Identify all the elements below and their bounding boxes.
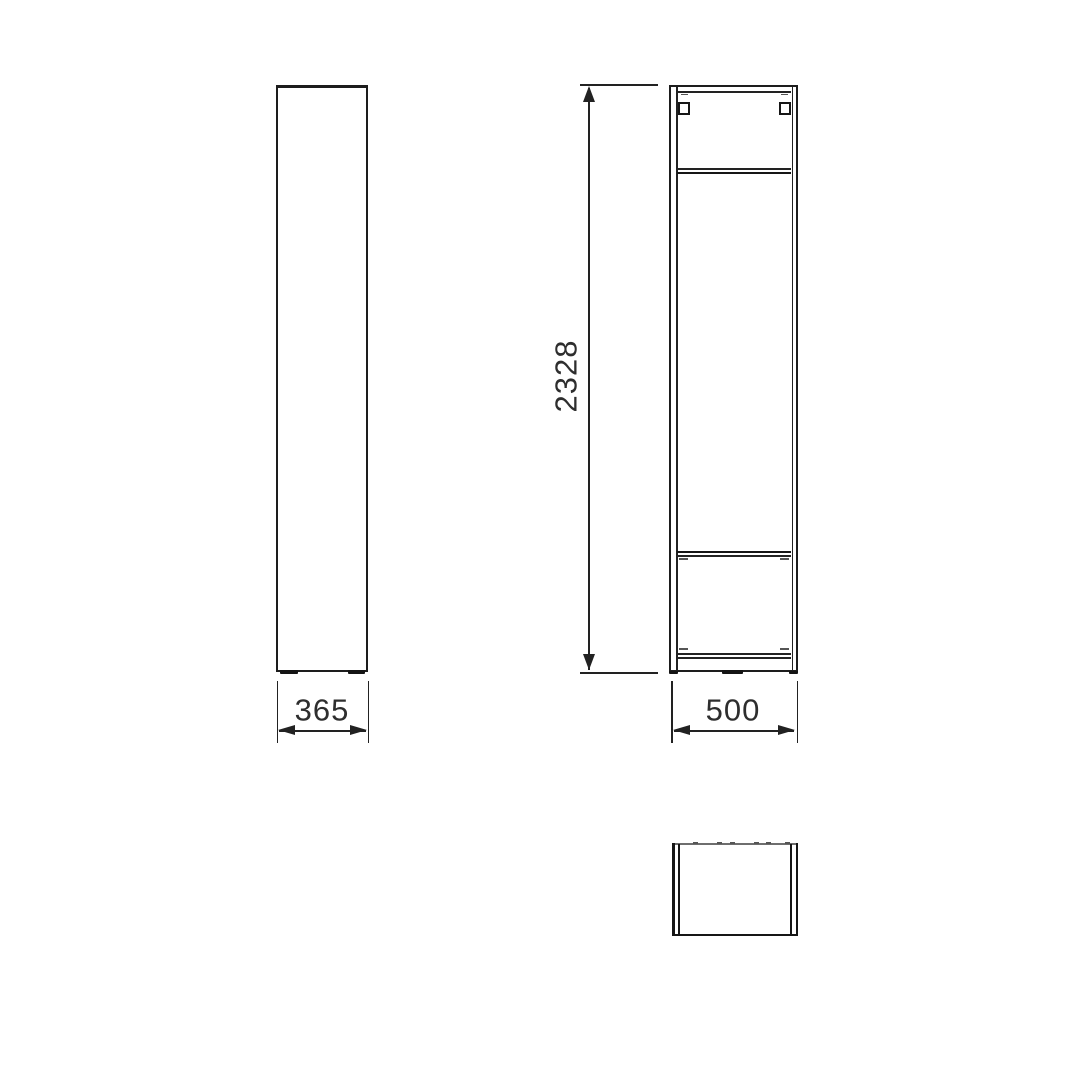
hanger-bracket-left-icon [678,102,690,115]
upper-shelf-line-1 [677,168,791,170]
arrow-right-icon [778,725,795,735]
depth-dimension-label: 365 [295,695,350,726]
front-foot-left-icon [669,671,678,674]
side-foot-left-icon [280,670,298,674]
plan-back-mark-5 [766,842,771,844]
width-dimension-line [674,730,794,732]
plan-back-edge-line [672,843,798,845]
plan-right-panel-inner-line [790,844,792,935]
top-rail-line [677,91,791,93]
shelf-pin-right-upper [780,558,789,560]
arrow-left-icon [673,725,690,735]
height-dimension-line [588,88,590,670]
upper-shelf-line-2 [677,172,791,174]
side-panel-outline [276,85,368,672]
left-side-panel-inner-line [676,87,678,670]
plan-back-mark-1 [693,842,698,844]
top-rail-mark-left [681,94,688,96]
plan-back-mark-4 [754,842,759,844]
width-dimension-label: 500 [706,695,761,726]
plan-right-panel-outer-line [796,843,799,936]
width-extension-line-right [797,681,799,743]
bottom-rail-line-2 [677,657,791,659]
plan-back-mark-2 [717,842,722,844]
height-dimension-label: 2328 [551,340,582,413]
arrow-left-icon [278,725,295,735]
bottom-rail-line-1 [677,653,791,655]
depth-extension-line-right [368,681,370,743]
plan-front-edge-line [672,934,798,937]
plan-left-panel-outer-line [672,843,675,936]
arrow-up-icon [583,86,595,102]
side-foot-right-icon [348,670,365,674]
front-foot-right-icon [789,671,798,674]
hanger-bracket-right-icon [779,102,791,115]
lower-shelf-line-1 [677,551,791,553]
arrow-right-icon [350,725,367,735]
front-foot-center-icon [722,670,743,674]
shelf-pin-right-lower [780,648,789,650]
plan-back-mark-3 [730,842,735,844]
top-rail-mark-right [781,94,788,96]
right-side-panel-inner-line [792,87,794,670]
shelf-pin-left-lower [679,648,688,650]
arrow-down-icon [583,654,595,670]
lower-shelf-line-2 [677,555,791,557]
plan-left-panel-inner-line [678,844,680,935]
height-extension-line-bottom [580,672,658,674]
technical-drawing: 2328 365 [0,0,1080,1080]
shelf-pin-left-upper [679,558,688,560]
